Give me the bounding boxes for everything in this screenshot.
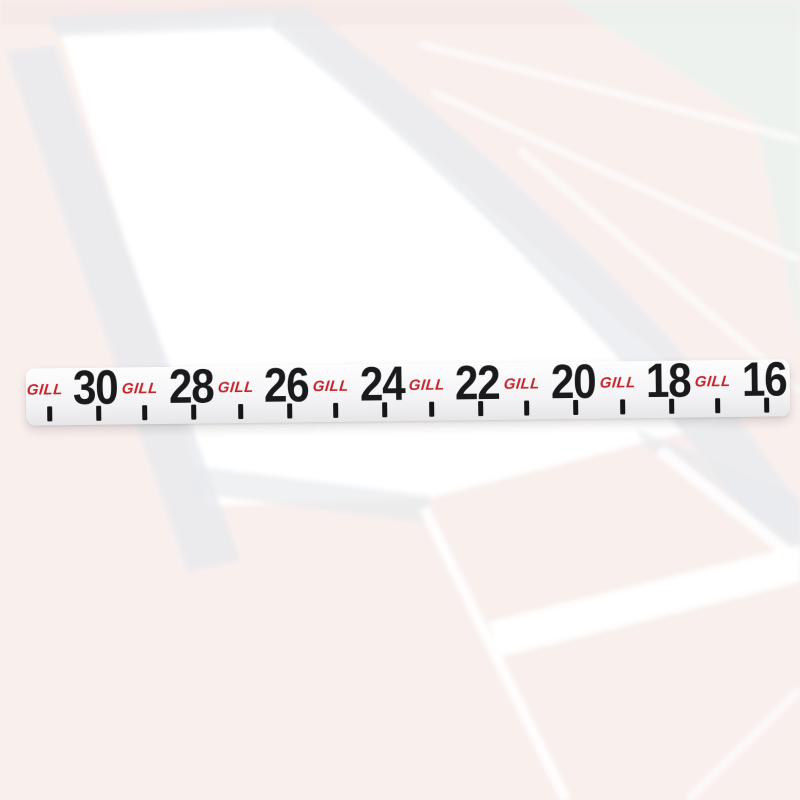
foot-number: 30 — [73, 364, 118, 413]
tick-mark — [715, 398, 720, 413]
tick-mark — [669, 399, 674, 414]
tape-segment: GILL18 — [599, 361, 695, 419]
product-photo: GILL30GILL28GILL26GILL24GILL22GILL20GILL… — [0, 0, 800, 800]
measuring-tape: GILL30GILL28GILL26GILL24GILL22GILL20GILL… — [26, 359, 791, 425]
gill-logo: GILL — [217, 379, 255, 396]
tape-segment: GILL22 — [408, 363, 504, 421]
tick-mark — [429, 402, 434, 417]
tape-segment: GILL28 — [121, 366, 217, 424]
tick-mark — [287, 403, 292, 418]
tick-mark — [238, 404, 243, 419]
tape-segment: GILL16 — [694, 359, 790, 417]
tick-mark — [478, 401, 483, 416]
gill-logo: GILL — [408, 377, 446, 394]
tick-mark — [524, 401, 529, 416]
tick-mark — [764, 398, 769, 413]
tick-mark — [191, 405, 196, 420]
tape-segment: GILL30 — [26, 368, 122, 426]
tape-segment: GILL26 — [217, 365, 313, 423]
tape-segment: GILL24 — [312, 364, 408, 422]
tick-mark — [573, 400, 578, 415]
gill-logo: GILL — [312, 378, 350, 395]
foot-number: 22 — [455, 359, 500, 408]
gill-logo: GILL — [503, 375, 541, 392]
gill-logo: GILL — [694, 373, 732, 390]
tick-mark — [47, 406, 52, 421]
tick-mark — [620, 399, 625, 414]
gill-logo: GILL — [26, 381, 64, 398]
tape-segment: GILL20 — [503, 362, 599, 420]
tick-mark — [333, 403, 338, 418]
tick-mark — [96, 406, 101, 421]
foot-number: 26 — [264, 362, 309, 411]
tick-mark — [143, 405, 148, 420]
gill-logo: GILL — [122, 380, 160, 397]
tick-mark — [382, 402, 387, 417]
gill-logo: GILL — [599, 374, 637, 391]
